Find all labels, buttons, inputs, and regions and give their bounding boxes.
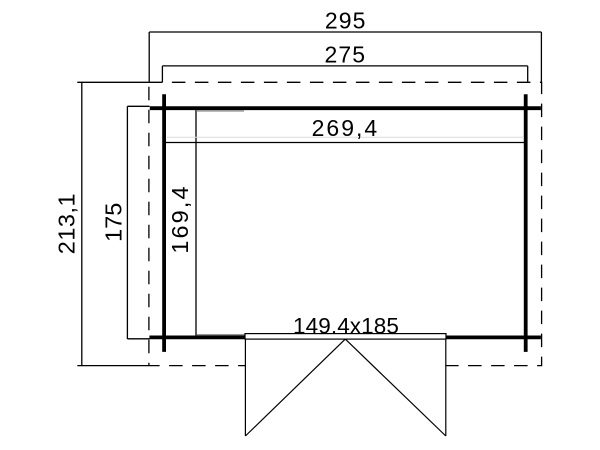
svg-text:169,4: 169,4: [167, 184, 193, 253]
svg-text:175: 175: [101, 203, 127, 242]
svg-text:295: 295: [325, 8, 367, 34]
svg-text:275: 275: [324, 42, 366, 68]
svg-text:269,4: 269,4: [312, 115, 380, 141]
svg-text:213,1: 213,1: [54, 193, 80, 254]
